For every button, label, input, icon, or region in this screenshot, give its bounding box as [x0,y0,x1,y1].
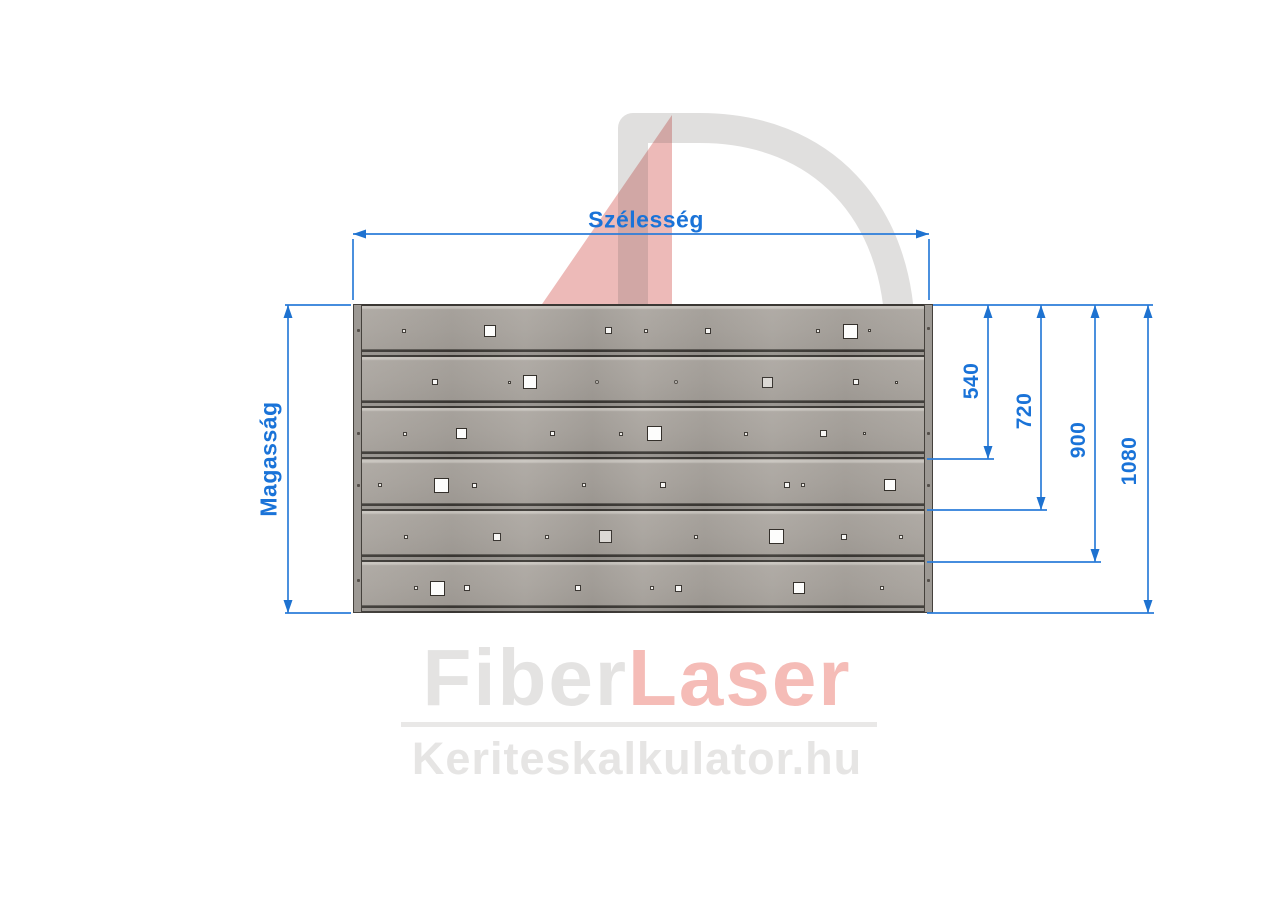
panel-hole-square [744,432,748,436]
slat-stack [362,304,924,613]
post-rivet-dot [357,579,360,582]
post-rivet-dot [357,432,360,435]
fence-slat [362,562,924,613]
panel-hole-square [644,329,648,333]
post-rivet-dot [357,484,360,487]
panel-hole-square [493,533,501,541]
panel-hole-square [895,381,898,384]
panel-hole-square [880,586,884,590]
panel-hole-square [868,329,871,332]
panel-hole-square [550,431,555,436]
panel-hole-square [582,483,586,487]
panel-hole-square [816,329,820,333]
panel-hole-square [884,479,896,491]
panel-hole-square [508,381,511,384]
drawing-canvas: Kerítésrendszer FiberLaser Keriteskalkul… [0,0,1280,905]
panel-hole-square [762,377,773,388]
panel-hole-square [705,328,711,334]
height-dimension-label: Magasság [256,401,283,516]
panel-hole-square [523,375,537,389]
panel-hole-square [464,585,470,591]
panel-hole-square [650,586,654,590]
panel-hole-square [430,581,445,596]
panel-hole-square [484,325,496,337]
post-rivet-dot [927,484,930,487]
panel-hole-square [793,582,805,594]
step-dimension-1080: 1080 [1118,437,1142,486]
panel-hole-square [575,585,581,591]
panel-hole-square [843,324,858,339]
post-rivet-dot [927,579,930,582]
right-post [924,304,933,613]
panel-hole-square [378,483,382,487]
panel-hole-square [403,432,407,436]
panel-hole-square [619,432,623,436]
panel-hole-square [801,483,805,487]
post-rivet-dot [357,329,360,332]
fence-panel [353,304,933,613]
post-rivet-dot [927,327,930,330]
panel-hole-square [595,380,599,384]
panel-hole-square [841,534,847,540]
fence-slat [362,511,924,562]
panel-hole-square [434,478,449,493]
fence-slat [362,306,924,357]
panel-hole-square [545,535,549,539]
panel-hole-square [899,535,903,539]
width-dimension-label: Szélesség [588,207,704,234]
panel-hole-square [853,379,859,385]
panel-hole-square [863,432,866,435]
panel-hole-square [456,428,467,439]
left-post [353,304,362,613]
panel-hole-square [820,430,827,437]
panel-hole-square [647,426,662,441]
panel-hole-square [694,535,698,539]
panel-hole-square [404,535,408,539]
panel-hole-square [472,483,477,488]
panel-hole-square [784,482,790,488]
panel-hole-square [660,482,666,488]
fence-slat [362,408,924,459]
post-rivet-dot [927,432,930,435]
panel-hole-square [769,529,784,544]
fence-slat [362,357,924,408]
panel-hole-square [605,327,612,334]
panel-hole-square [432,379,438,385]
panel-hole-square [402,329,406,333]
panel-hole-square [599,530,612,543]
panel-hole-square [675,585,682,592]
step-dimension-720: 720 [1013,393,1037,430]
panel-hole-square [674,380,678,384]
step-dimension-900: 900 [1067,422,1091,459]
step-dimension-540: 540 [960,363,984,400]
panel-hole-square [414,586,418,590]
